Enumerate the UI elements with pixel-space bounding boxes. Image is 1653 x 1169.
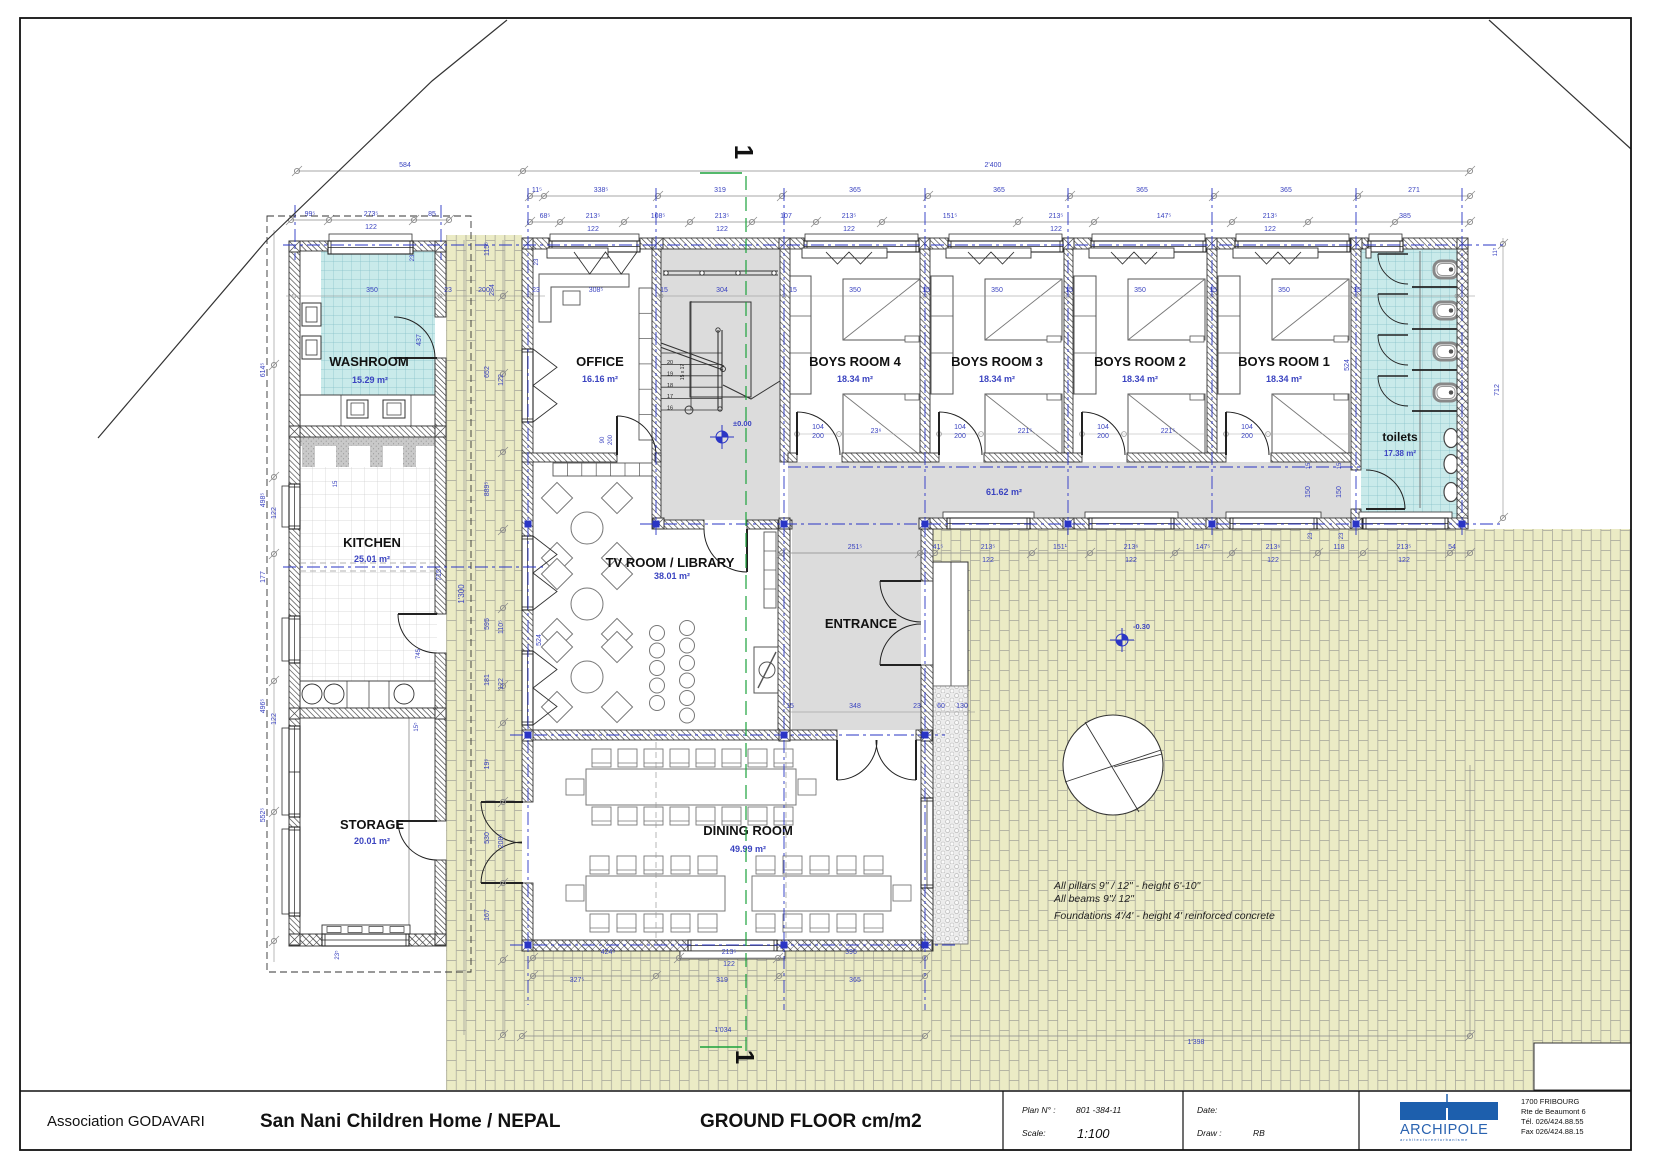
svg-text:208⁵: 208⁵ bbox=[498, 834, 505, 849]
svg-text:23: 23 bbox=[532, 287, 540, 294]
svg-text:327⁵: 327⁵ bbox=[570, 977, 585, 984]
svg-text:151¹: 151¹ bbox=[1053, 544, 1068, 551]
svg-text:110⁵: 110⁵ bbox=[498, 620, 505, 634]
svg-text:Date:: Date: bbox=[1197, 1105, 1218, 1115]
svg-text:496⁵: 496⁵ bbox=[260, 699, 267, 714]
svg-text:23: 23 bbox=[534, 258, 540, 265]
svg-text:19: 19 bbox=[667, 371, 673, 377]
svg-text:122: 122 bbox=[498, 374, 505, 386]
svg-text:15: 15 bbox=[922, 287, 930, 294]
svg-text:115⁵: 115⁵ bbox=[484, 242, 491, 256]
svg-text:284: 284 bbox=[489, 284, 496, 296]
svg-text:DINING ROOM: DINING ROOM bbox=[703, 823, 793, 838]
svg-text:319: 319 bbox=[716, 977, 728, 984]
svg-text:Scale:: Scale: bbox=[1022, 1128, 1046, 1138]
svg-text:273⁵: 273⁵ bbox=[364, 211, 379, 218]
svg-text:15: 15 bbox=[1337, 462, 1343, 469]
svg-text:Tél. 026/424.88.55: Tél. 026/424.88.55 bbox=[1521, 1117, 1584, 1126]
svg-text:614⁵: 614⁵ bbox=[260, 363, 267, 378]
svg-text:20.01 m²: 20.01 m² bbox=[354, 836, 390, 846]
svg-text:23⁵: 23⁵ bbox=[334, 950, 341, 960]
svg-text:213⁵: 213⁵ bbox=[1263, 213, 1278, 220]
svg-text:319: 319 bbox=[714, 187, 726, 194]
svg-text:200: 200 bbox=[608, 434, 614, 445]
svg-text:104: 104 bbox=[812, 424, 824, 431]
svg-text:a r c h i t e c t u r e e t: a r c h i t e c t u r e e t u r b a n i … bbox=[1400, 1137, 1468, 1142]
svg-text:23: 23 bbox=[1308, 532, 1314, 539]
svg-text:365: 365 bbox=[1136, 187, 1148, 194]
svg-text:16.16 m²: 16.16 m² bbox=[582, 374, 618, 384]
svg-text:122: 122 bbox=[1264, 226, 1276, 233]
svg-text:17.38 m²: 17.38 m² bbox=[1384, 449, 1416, 458]
svg-text:Plan N° :: Plan N° : bbox=[1022, 1105, 1056, 1115]
svg-text:350: 350 bbox=[1278, 287, 1290, 294]
svg-text:213⁶: 213⁶ bbox=[1266, 544, 1281, 551]
svg-text:BOYS ROOM 4: BOYS ROOM 4 bbox=[809, 354, 902, 369]
svg-text:Association GODAVARI: Association GODAVARI bbox=[47, 1113, 205, 1130]
svg-text:122: 122 bbox=[1398, 557, 1410, 564]
svg-text:200: 200 bbox=[1097, 433, 1109, 440]
svg-text:54: 54 bbox=[1448, 544, 1456, 551]
svg-text:200: 200 bbox=[812, 433, 824, 440]
svg-text:15: 15 bbox=[1065, 287, 1073, 294]
svg-text:107: 107 bbox=[780, 213, 792, 220]
svg-text:350: 350 bbox=[991, 287, 1003, 294]
svg-text:104: 104 bbox=[954, 424, 966, 431]
svg-text:177: 177 bbox=[260, 571, 267, 583]
svg-text:ARCHIPOLE: ARCHIPOLE bbox=[1400, 1122, 1488, 1138]
svg-text:396: 396 bbox=[845, 949, 857, 956]
svg-text:GROUND FLOOR cm/m2: GROUND FLOOR cm/m2 bbox=[700, 1111, 922, 1132]
svg-text:385: 385 bbox=[1399, 213, 1411, 220]
svg-text:60: 60 bbox=[937, 703, 945, 710]
svg-text:23: 23 bbox=[913, 703, 921, 710]
svg-text:BOYS ROOM 2: BOYS ROOM 2 bbox=[1094, 354, 1186, 369]
svg-text:19⁵: 19⁵ bbox=[484, 759, 491, 770]
svg-text:15: 15 bbox=[1306, 462, 1312, 469]
svg-text:±0.00: ±0.00 bbox=[733, 419, 752, 428]
svg-text:25.01 m²: 25.01 m² bbox=[354, 554, 390, 564]
svg-text:552⁵: 552⁵ bbox=[260, 808, 267, 823]
svg-text:584: 584 bbox=[399, 162, 411, 169]
svg-text:15: 15 bbox=[1353, 287, 1361, 294]
svg-text:15.29 m²: 15.29 m² bbox=[352, 375, 388, 385]
svg-text:348: 348 bbox=[849, 703, 861, 710]
svg-text:122: 122 bbox=[498, 678, 505, 690]
svg-text:38.01 m²: 38.01 m² bbox=[654, 571, 690, 581]
svg-text:104: 104 bbox=[1241, 424, 1253, 431]
svg-text:23: 23 bbox=[410, 254, 416, 261]
svg-text:304: 304 bbox=[716, 287, 728, 294]
svg-text:122: 122 bbox=[271, 507, 278, 519]
svg-text:68⁵: 68⁵ bbox=[540, 213, 551, 220]
svg-text:365: 365 bbox=[849, 187, 861, 194]
svg-text:213⁵: 213⁵ bbox=[842, 213, 857, 220]
svg-text:424⁵: 424⁵ bbox=[601, 949, 616, 956]
svg-text:Fax 026/424.88.15: Fax 026/424.88.15 bbox=[1521, 1127, 1584, 1136]
svg-text:BOYS ROOM 3: BOYS ROOM 3 bbox=[951, 354, 1043, 369]
svg-text:122: 122 bbox=[716, 226, 728, 233]
svg-text:61.62 m²: 61.62 m² bbox=[986, 487, 1022, 497]
svg-text:213⁶: 213⁶ bbox=[1124, 544, 1139, 551]
svg-text:365: 365 bbox=[1280, 187, 1292, 194]
svg-text:15: 15 bbox=[786, 703, 794, 710]
svg-text:20: 20 bbox=[667, 360, 673, 366]
svg-text:147⁵: 147⁵ bbox=[1157, 213, 1172, 220]
svg-text:23: 23 bbox=[444, 287, 452, 294]
svg-text:350: 350 bbox=[1134, 287, 1146, 294]
svg-text:Draw :: Draw : bbox=[1197, 1128, 1222, 1138]
svg-text:365: 365 bbox=[849, 977, 861, 984]
svg-text:90: 90 bbox=[600, 436, 606, 443]
svg-text:104: 104 bbox=[1097, 424, 1109, 431]
svg-text:712: 712 bbox=[1494, 384, 1501, 396]
svg-text:16: 16 bbox=[667, 406, 673, 412]
svg-text:365: 365 bbox=[993, 187, 1005, 194]
svg-text:WASHROOM: WASHROOM bbox=[329, 354, 408, 369]
svg-text:23: 23 bbox=[1339, 532, 1345, 539]
svg-text:150: 150 bbox=[1305, 486, 1312, 498]
svg-text:147⁵: 147⁵ bbox=[1196, 544, 1211, 551]
svg-text:213⁵: 213⁵ bbox=[715, 213, 730, 220]
svg-text:KITCHEN: KITCHEN bbox=[343, 535, 401, 550]
svg-text:18.34 m²: 18.34 m² bbox=[837, 374, 873, 384]
svg-text:498⁵: 498⁵ bbox=[260, 493, 267, 508]
svg-text:15⁵: 15⁵ bbox=[413, 722, 420, 732]
svg-text:745: 745 bbox=[416, 648, 422, 659]
svg-text:801 -384-11: 801 -384-11 bbox=[1076, 1105, 1121, 1115]
svg-text:130: 130 bbox=[956, 703, 968, 710]
svg-text:BOYS ROOM 1: BOYS ROOM 1 bbox=[1238, 354, 1330, 369]
svg-text:167: 167 bbox=[484, 909, 491, 921]
svg-text:11⁵: 11⁵ bbox=[532, 187, 542, 194]
svg-text:1: 1 bbox=[729, 145, 759, 159]
svg-text:17: 17 bbox=[667, 394, 673, 400]
svg-text:1'398: 1'398 bbox=[1188, 1039, 1205, 1046]
svg-text:350: 350 bbox=[366, 287, 378, 294]
svg-text:122: 122 bbox=[1050, 226, 1062, 233]
svg-text:308⁵: 308⁵ bbox=[589, 287, 604, 294]
svg-text:18.34 m²: 18.34 m² bbox=[1122, 374, 1158, 384]
svg-text:All pillars 9" / 12" - heigh: All pillars 9" / 12" - height 6'-10" bbox=[1053, 880, 1202, 892]
svg-text:200: 200 bbox=[954, 433, 966, 440]
svg-text:213⁵: 213⁵ bbox=[586, 213, 601, 220]
svg-text:49.99 m²: 49.99 m² bbox=[730, 844, 766, 854]
svg-text:595: 595 bbox=[484, 618, 491, 630]
svg-text:1'034: 1'034 bbox=[715, 1027, 732, 1034]
svg-text:18.34 m²: 18.34 m² bbox=[1266, 374, 1302, 384]
svg-text:15: 15 bbox=[660, 287, 668, 294]
svg-text:200: 200 bbox=[1241, 433, 1253, 440]
svg-text:41⁵: 41⁵ bbox=[933, 544, 944, 551]
svg-text:STORAGE: STORAGE bbox=[340, 817, 404, 832]
svg-text:524: 524 bbox=[536, 634, 543, 646]
svg-text:TV ROOM / LIBRARY: TV ROOM / LIBRARY bbox=[606, 555, 735, 570]
svg-text:122: 122 bbox=[1125, 557, 1137, 564]
svg-text:221⁵: 221⁵ bbox=[1018, 428, 1033, 435]
svg-text:338⁵: 338⁵ bbox=[594, 187, 609, 194]
svg-text:652: 652 bbox=[484, 366, 491, 378]
svg-text:23⁶: 23⁶ bbox=[871, 428, 882, 435]
svg-text:Rte de Beaumont 6: Rte de Beaumont 6 bbox=[1521, 1107, 1586, 1116]
svg-text:271: 271 bbox=[1408, 187, 1420, 194]
svg-text:toilets: toilets bbox=[1382, 430, 1418, 444]
svg-text:All beams 9"/ 12": All beams 9"/ 12" bbox=[1053, 893, 1135, 905]
svg-text:118: 118 bbox=[1333, 544, 1344, 551]
svg-text:Foundations 4'/4' - height 4': Foundations 4'/4' - height 4' reinforced… bbox=[1054, 910, 1275, 922]
svg-text:99⁵: 99⁵ bbox=[305, 211, 316, 218]
svg-text:122: 122 bbox=[271, 713, 278, 725]
svg-text:530: 530 bbox=[484, 832, 491, 844]
svg-text:213⁵: 213⁵ bbox=[1049, 213, 1064, 220]
svg-text:150: 150 bbox=[1336, 486, 1343, 498]
svg-text:15: 15 bbox=[333, 480, 339, 487]
svg-text:221⁵: 221⁵ bbox=[1161, 428, 1176, 435]
svg-text:85: 85 bbox=[428, 211, 436, 218]
svg-text:437: 437 bbox=[416, 334, 423, 346]
svg-text:2'400: 2'400 bbox=[985, 162, 1002, 169]
svg-text:1'300: 1'300 bbox=[457, 584, 466, 604]
svg-text:122: 122 bbox=[982, 557, 994, 564]
svg-text:251⁵: 251⁵ bbox=[848, 544, 863, 551]
svg-text:524: 524 bbox=[1344, 359, 1351, 371]
svg-text:889⁵: 889⁵ bbox=[484, 482, 491, 497]
svg-text:15: 15 bbox=[789, 287, 797, 294]
svg-text:1: 1 bbox=[730, 1050, 760, 1064]
svg-text:18.34 m²: 18.34 m² bbox=[979, 374, 1015, 384]
svg-text:RB: RB bbox=[1253, 1128, 1265, 1138]
svg-text:1700 FRIBOURG: 1700 FRIBOURG bbox=[1521, 1097, 1580, 1106]
svg-text:15: 15 bbox=[1209, 287, 1217, 294]
svg-text:OFFICE: OFFICE bbox=[576, 354, 624, 369]
svg-text:1:100: 1:100 bbox=[1077, 1126, 1110, 1141]
svg-text:ENTRANCE: ENTRANCE bbox=[825, 616, 898, 631]
svg-text:350: 350 bbox=[849, 287, 861, 294]
svg-text:122: 122 bbox=[587, 226, 599, 233]
svg-text:18: 18 bbox=[667, 383, 673, 389]
svg-text:-0.30: -0.30 bbox=[1133, 622, 1150, 631]
svg-text:San Nani Children Home / NEPA: San Nani Children Home / NEPAL bbox=[260, 1111, 561, 1132]
svg-text:213⁵: 213⁵ bbox=[722, 949, 737, 956]
svg-text:213⁵: 213⁵ bbox=[981, 544, 996, 551]
svg-text:122: 122 bbox=[365, 224, 377, 231]
svg-text:151⁵: 151⁵ bbox=[943, 213, 958, 220]
svg-text:122: 122 bbox=[723, 961, 735, 968]
svg-text:15 x 17: 15 x 17 bbox=[680, 364, 686, 381]
svg-text:122: 122 bbox=[843, 226, 855, 233]
svg-text:108⁵: 108⁵ bbox=[651, 213, 666, 220]
svg-text:181: 181 bbox=[484, 674, 491, 686]
svg-text:213⁵: 213⁵ bbox=[1397, 544, 1412, 551]
svg-text:122: 122 bbox=[1267, 557, 1279, 564]
svg-text:11⁵: 11⁵ bbox=[1492, 247, 1499, 256]
svg-text:715: 715 bbox=[436, 569, 443, 581]
